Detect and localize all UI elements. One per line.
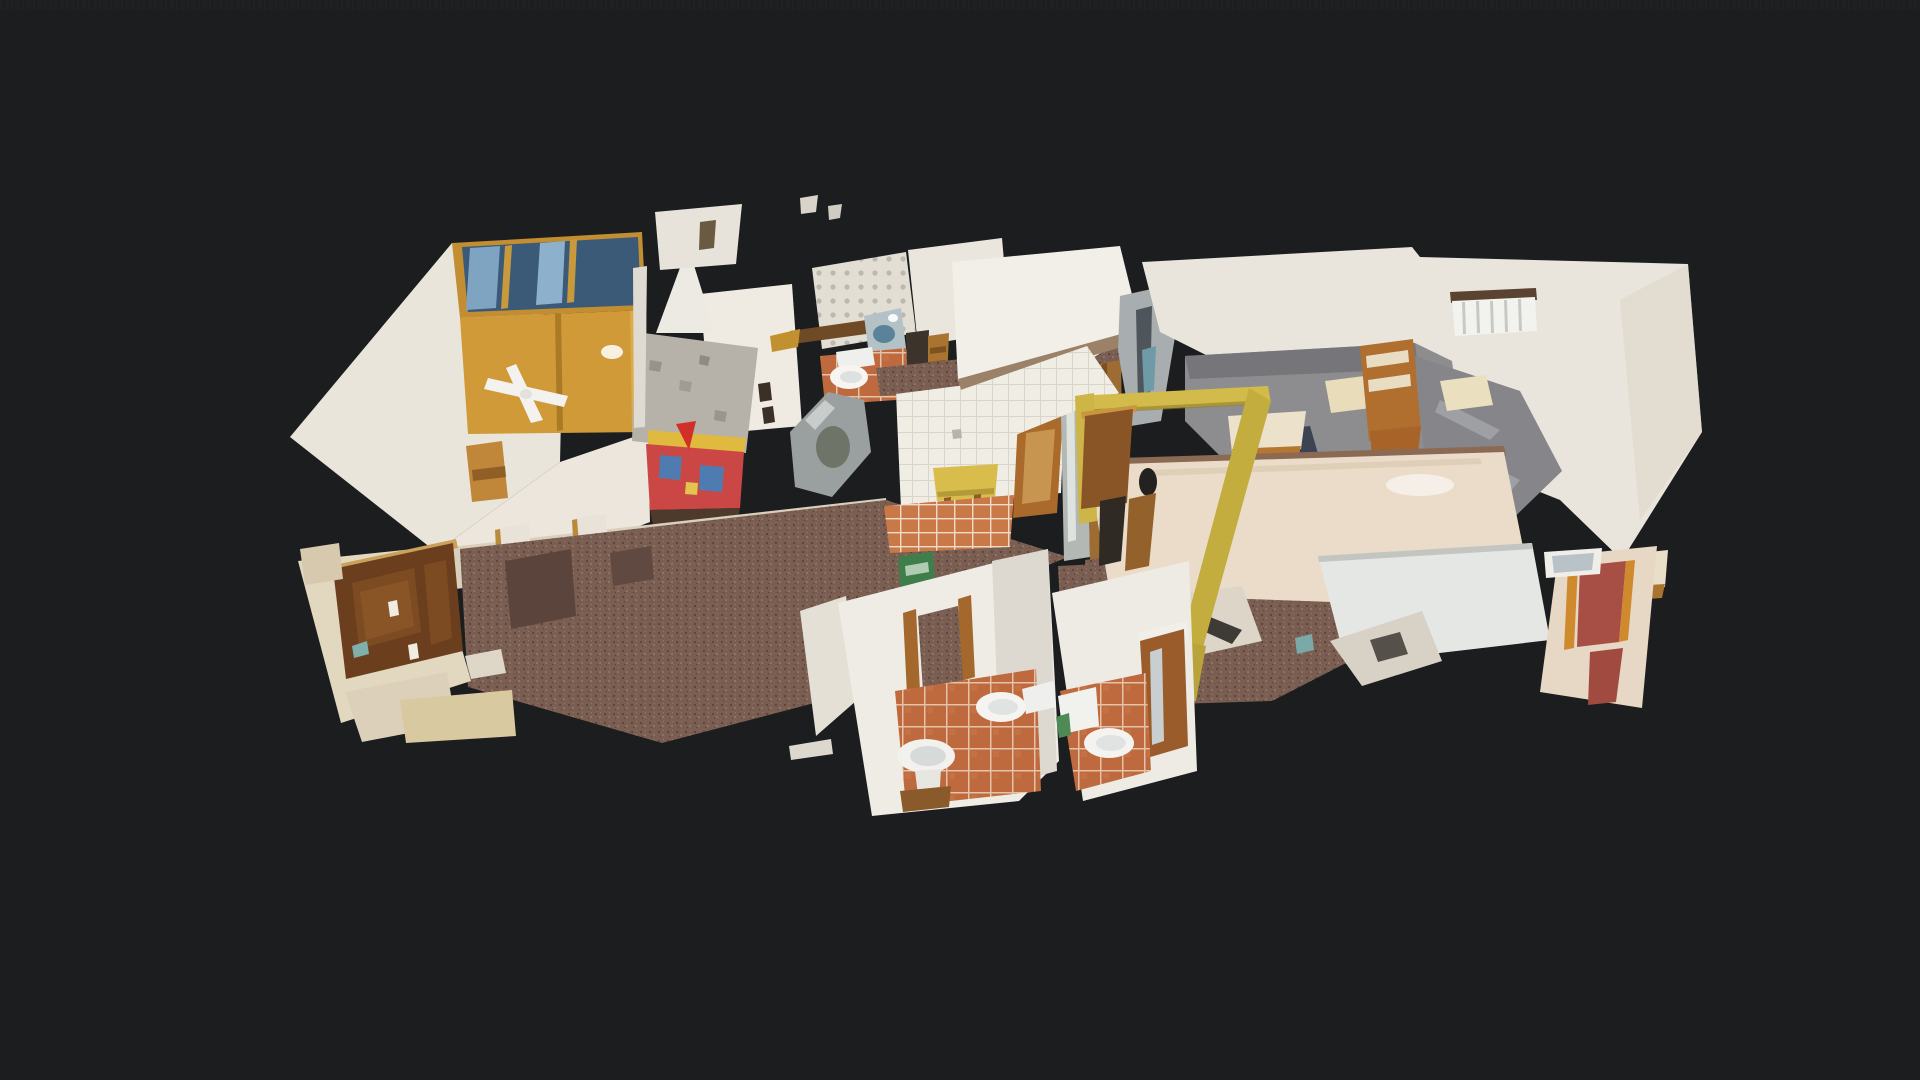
stone-speckle-1 xyxy=(649,360,662,372)
black-bag xyxy=(1139,468,1157,496)
wood-shine xyxy=(601,345,623,359)
kids-bed-blue-2 xyxy=(699,465,724,492)
bath1-doorway-floor xyxy=(918,606,963,691)
bed-sheen xyxy=(1386,474,1454,496)
dollhouse-3d-view[interactable] xyxy=(0,0,1920,1080)
picture-frame-1 xyxy=(758,382,772,402)
kids-bed-blue-1 xyxy=(659,455,682,480)
sink1-bowl xyxy=(910,746,946,766)
hall-door-brown xyxy=(1081,409,1133,509)
sofa-pillow-2 xyxy=(1440,375,1493,411)
mesh-bit-2 xyxy=(828,204,842,220)
mesh-bit-1 xyxy=(800,195,818,214)
kitchen-switch-1 xyxy=(952,429,962,439)
top-fragment-mark xyxy=(699,220,716,250)
apartment-3d-model[interactable] xyxy=(0,0,1920,1080)
hall-floor-dark-2 xyxy=(610,546,654,586)
headboard-wood-panel xyxy=(460,310,648,434)
right-window-glass xyxy=(1552,553,1594,573)
green-towel xyxy=(1056,713,1071,738)
white-pole xyxy=(633,266,647,428)
curtain-light-2 xyxy=(536,241,565,305)
duct-inner xyxy=(816,426,850,468)
appliance-blue-lid xyxy=(873,325,895,343)
ceiling-fan-hub xyxy=(520,389,532,399)
lying-door-panel xyxy=(1022,429,1055,504)
picture-frame-2 xyxy=(762,406,775,424)
bath2-mirror xyxy=(1150,648,1164,745)
hall-floor-dark-1 xyxy=(505,549,576,629)
stone-speckle-4 xyxy=(714,410,727,422)
gray-fragment-teal xyxy=(1142,346,1156,393)
kids-bed-yellow-dot xyxy=(685,482,698,495)
top-wall-fragment xyxy=(655,204,742,270)
left-mesh-tip xyxy=(300,543,343,585)
toilet2-inner xyxy=(1096,735,1126,751)
stone-speckle-2 xyxy=(679,380,692,392)
curtain-light-1 xyxy=(466,246,500,310)
toilet1-inner xyxy=(988,699,1018,715)
paper-roll-fragment xyxy=(789,739,833,760)
top-toilet-inner xyxy=(840,371,862,383)
appliance-shine xyxy=(888,314,898,322)
